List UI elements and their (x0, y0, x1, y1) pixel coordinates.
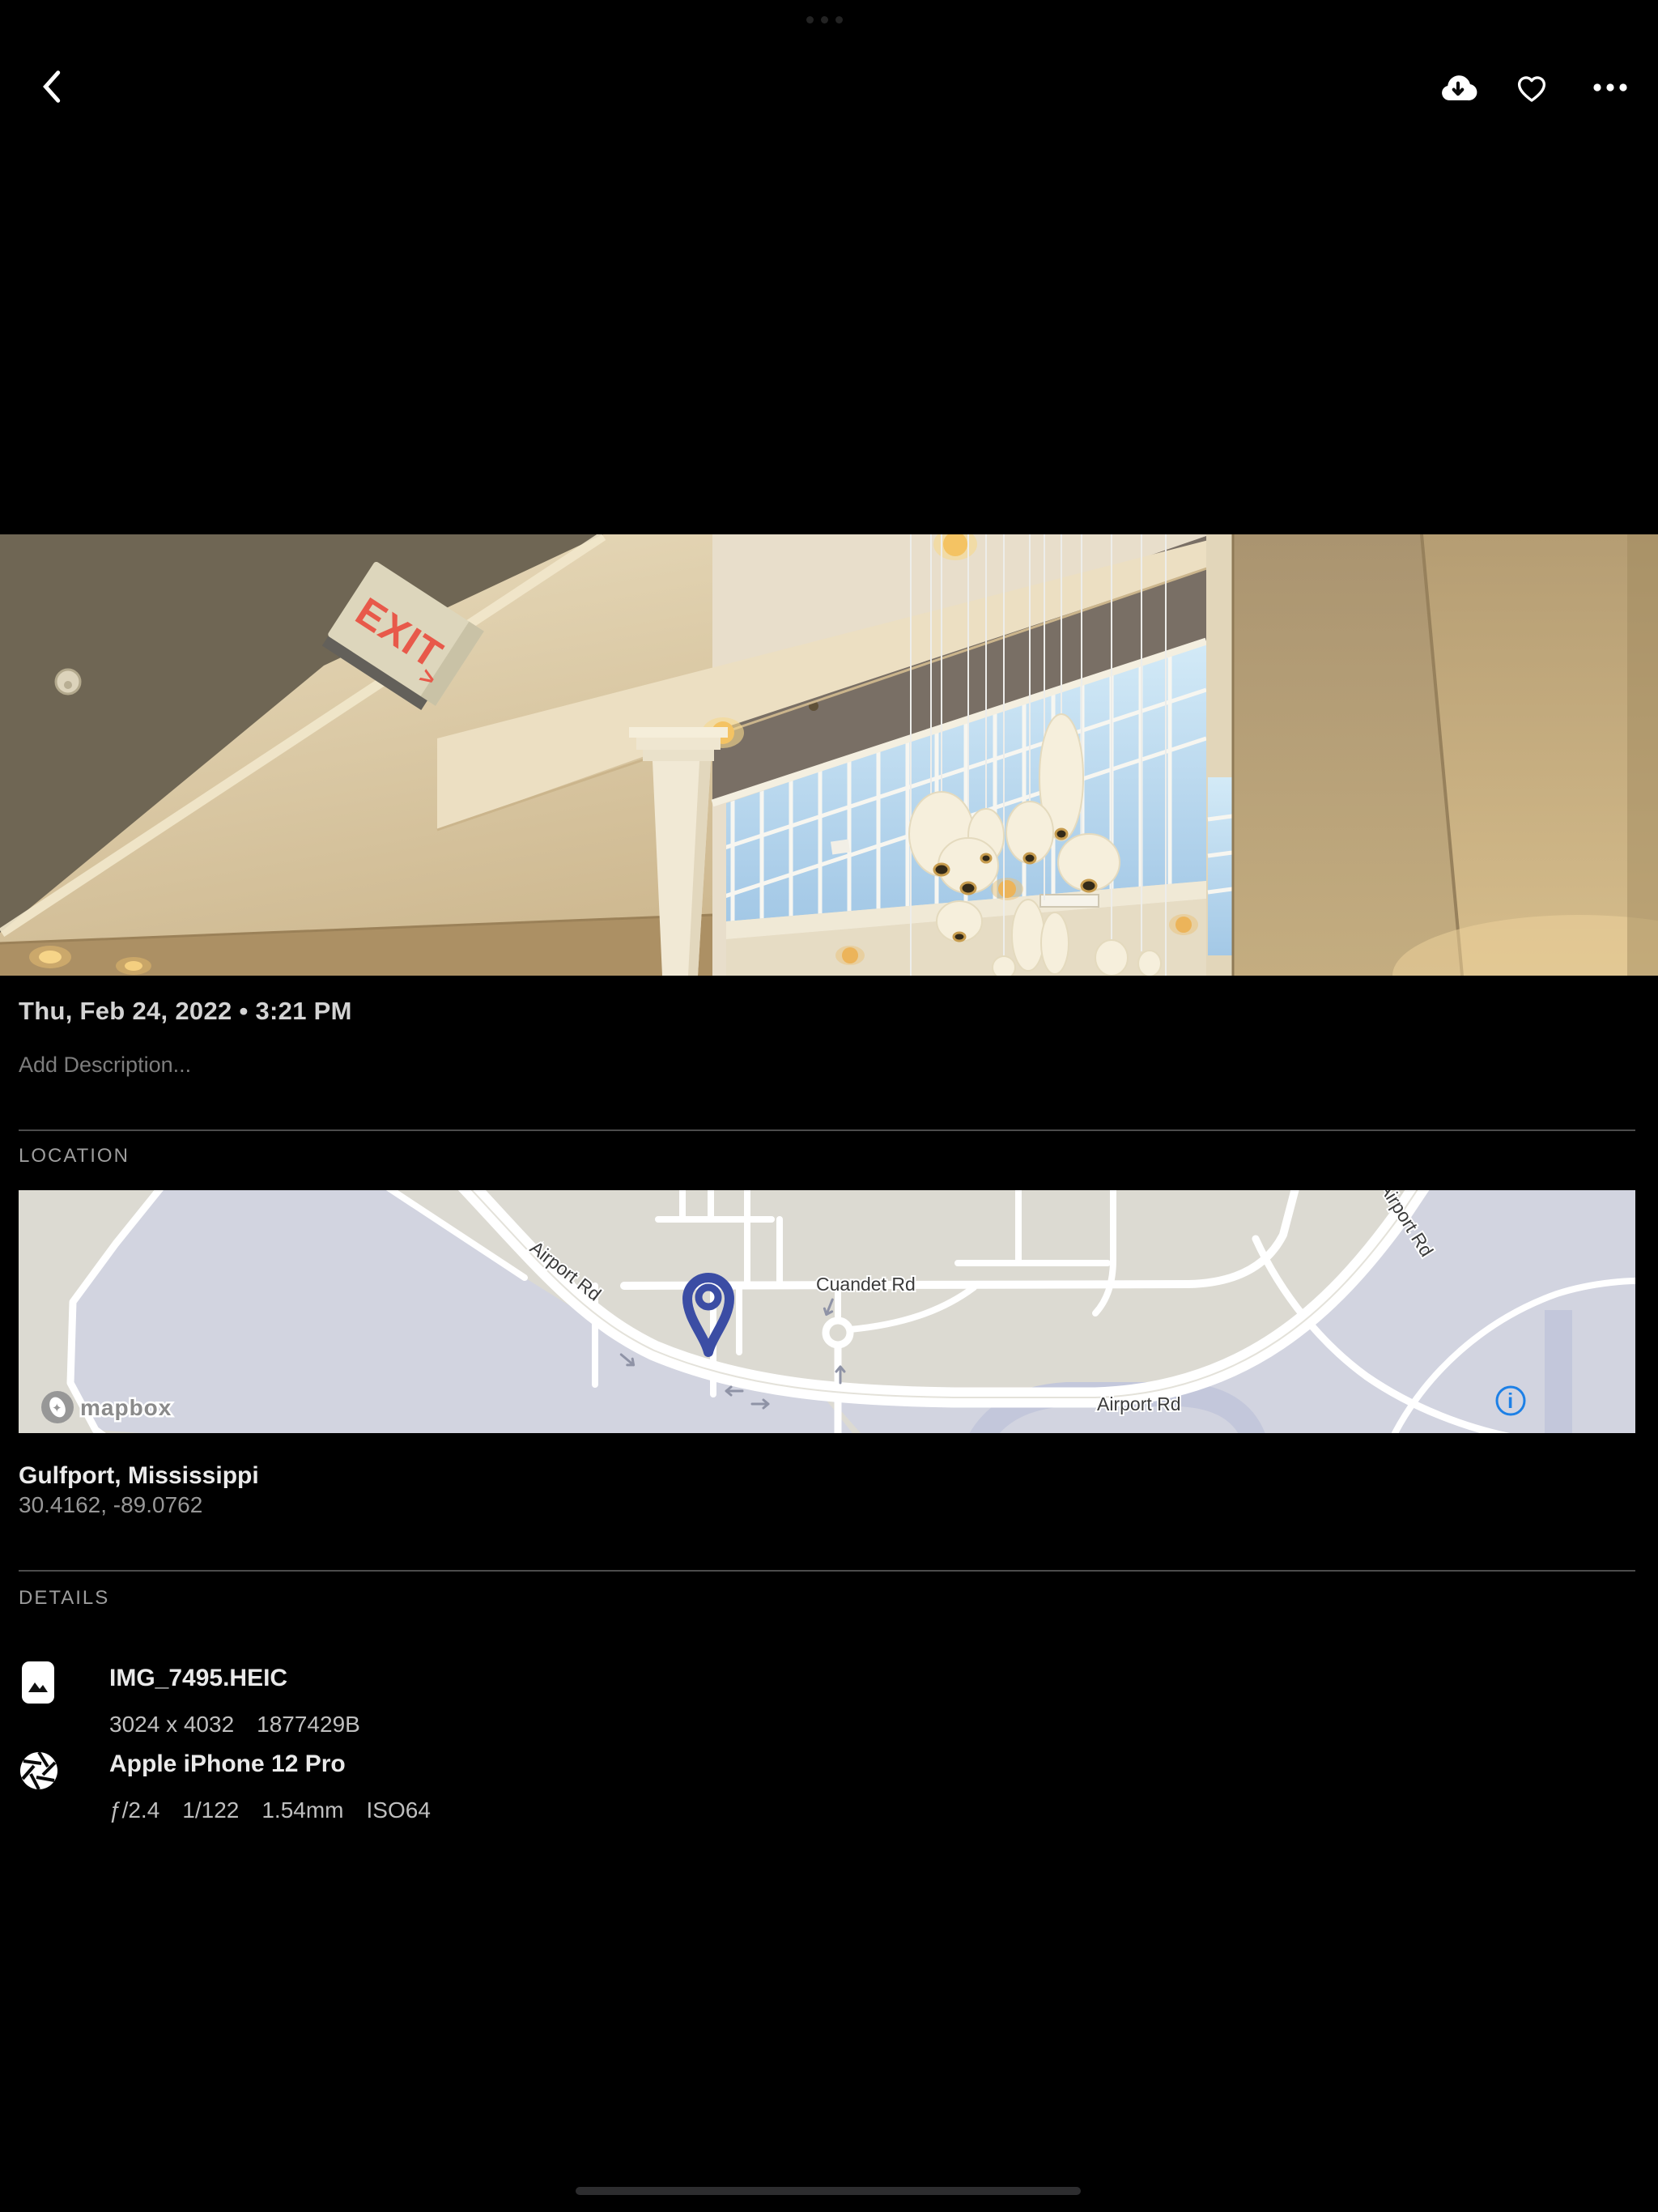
aperture-icon (19, 1750, 59, 1791)
more-button[interactable] (1590, 80, 1630, 95)
svg-text:mapbox: mapbox (80, 1395, 172, 1420)
location-coordinates: 30.4162, -89.0762 (19, 1492, 202, 1518)
photo-datetime: Thu, Feb 24, 2022 • 3:21 PM (19, 997, 352, 1026)
download-button[interactable] (1436, 70, 1480, 105)
location-header: LOCATION (19, 1145, 130, 1168)
camera-name: Apple iPhone 12 Pro (109, 1750, 346, 1778)
heart-icon (1514, 71, 1550, 105)
cloud-download-icon (1436, 70, 1480, 105)
ellipsis-icon (1590, 80, 1630, 95)
dot (806, 16, 814, 23)
camera-aperture: ƒ/2.4 (109, 1797, 159, 1823)
camera-iso: ISO64 (367, 1797, 431, 1823)
photo-view[interactable]: EXIT > (0, 534, 1658, 976)
back-button[interactable] (34, 66, 71, 107)
mapbox-star-icon: ✦ (52, 1402, 62, 1415)
info-icon: i (1507, 1389, 1513, 1413)
file-meta: 3024 x 40321877429B (109, 1712, 383, 1738)
multitask-indicator (806, 16, 843, 23)
details-header: DETAILS (19, 1587, 109, 1610)
file-icon (20, 1660, 56, 1705)
divider (19, 1129, 1635, 1131)
map-canvas: Airport Rd Cuandet Rd Airport Rd Airport… (19, 1190, 1635, 1433)
mapbox-attribution[interactable]: ✦ mapbox (41, 1391, 172, 1423)
image-icon (20, 1660, 56, 1705)
location-place: Gulfport, Mississippi (19, 1462, 259, 1490)
map-label-airport-rd-bottom: Airport Rd (1097, 1393, 1181, 1414)
camera-shutter: 1/122 (182, 1797, 239, 1823)
camera-meta: ƒ/2.41/1221.54mmISO64 (109, 1797, 453, 1823)
dot (835, 16, 843, 23)
chevron-left-icon (34, 66, 71, 107)
dot (821, 16, 828, 23)
home-indicator[interactable] (576, 2187, 1081, 2195)
location-map[interactable]: Airport Rd Cuandet Rd Airport Rd Airport… (19, 1190, 1635, 1433)
camera-icon-wrap (19, 1750, 59, 1791)
file-name: IMG_7495.HEIC (109, 1665, 287, 1692)
divider (19, 1570, 1635, 1572)
camera-focal: 1.54mm (261, 1797, 343, 1823)
file-size: 1877429B (257, 1712, 360, 1737)
file-dimensions: 3024 x 4032 (109, 1712, 234, 1737)
photo-image: EXIT > (0, 534, 1658, 976)
map-label-cuandet-rd: Cuandet Rd (816, 1274, 916, 1295)
description-field[interactable]: Add Description... (19, 1053, 191, 1078)
favorite-button[interactable] (1514, 71, 1550, 105)
